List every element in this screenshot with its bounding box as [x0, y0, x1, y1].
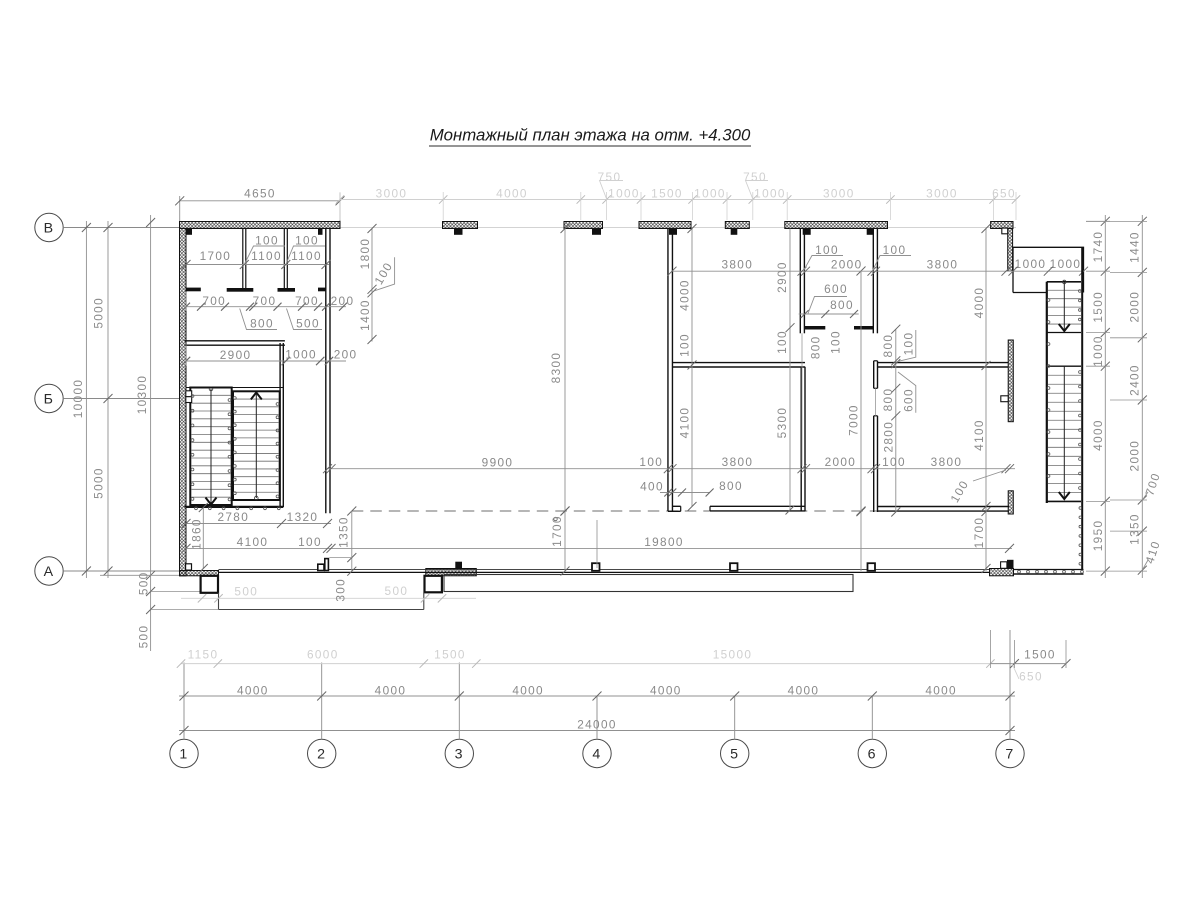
- svg-text:7: 7: [1005, 747, 1014, 763]
- svg-text:2: 2: [317, 747, 326, 763]
- svg-text:2000: 2000: [1128, 440, 1142, 472]
- svg-text:700: 700: [253, 294, 277, 308]
- svg-text:4000: 4000: [650, 684, 682, 698]
- svg-text:4000: 4000: [237, 684, 269, 698]
- svg-text:3: 3: [455, 747, 464, 763]
- svg-text:4000: 4000: [678, 279, 692, 311]
- svg-text:2780: 2780: [217, 510, 249, 524]
- svg-text:2000: 2000: [825, 455, 857, 469]
- svg-text:1000: 1000: [694, 187, 726, 201]
- svg-text:4000: 4000: [375, 684, 407, 698]
- svg-text:2000: 2000: [1128, 291, 1142, 323]
- svg-text:100: 100: [678, 333, 692, 357]
- svg-text:100: 100: [829, 330, 843, 354]
- svg-text:5000: 5000: [92, 467, 106, 499]
- svg-text:1800: 1800: [358, 238, 372, 270]
- svg-text:4: 4: [592, 747, 601, 763]
- svg-text:400: 400: [640, 480, 664, 494]
- svg-text:100: 100: [902, 332, 916, 356]
- svg-text:6000: 6000: [307, 648, 339, 662]
- svg-text:600: 600: [902, 388, 916, 412]
- svg-text:4000: 4000: [512, 684, 544, 698]
- svg-text:10000: 10000: [71, 379, 85, 419]
- svg-text:9900: 9900: [482, 456, 514, 470]
- svg-text:750: 750: [598, 170, 622, 184]
- svg-text:1700: 1700: [200, 249, 232, 263]
- svg-text:1000: 1000: [608, 187, 640, 201]
- svg-text:300: 300: [334, 578, 348, 602]
- svg-text:1150: 1150: [188, 648, 219, 662]
- svg-text:1000: 1000: [1015, 257, 1047, 271]
- svg-text:100: 100: [775, 330, 789, 354]
- svg-text:600: 600: [824, 282, 848, 296]
- svg-text:3000: 3000: [376, 187, 408, 201]
- svg-text:100: 100: [882, 455, 906, 469]
- svg-text:1: 1: [179, 747, 188, 763]
- svg-text:24000: 24000: [577, 718, 617, 732]
- svg-text:1400: 1400: [358, 299, 372, 331]
- svg-text:800: 800: [881, 334, 895, 358]
- svg-text:700: 700: [295, 294, 319, 308]
- svg-text:4000: 4000: [972, 287, 986, 319]
- svg-text:1100: 1100: [291, 249, 322, 263]
- svg-text:800: 800: [881, 388, 895, 412]
- svg-text:10300: 10300: [135, 375, 149, 415]
- svg-text:650: 650: [992, 187, 1016, 201]
- svg-text:2000: 2000: [831, 258, 863, 272]
- svg-text:1500: 1500: [434, 648, 466, 662]
- svg-text:19800: 19800: [644, 535, 684, 549]
- svg-text:1100: 1100: [251, 249, 282, 263]
- svg-text:100: 100: [298, 535, 322, 549]
- svg-text:3800: 3800: [721, 258, 753, 272]
- svg-text:4000: 4000: [1091, 419, 1105, 451]
- svg-text:1860: 1860: [190, 518, 204, 550]
- svg-text:4650: 4650: [244, 187, 276, 201]
- svg-text:4000: 4000: [925, 684, 957, 698]
- svg-text:4100: 4100: [678, 407, 692, 439]
- svg-text:500: 500: [296, 317, 320, 331]
- svg-text:1320: 1320: [287, 510, 319, 524]
- svg-text:200: 200: [331, 294, 355, 308]
- svg-text:Б: Б: [44, 392, 55, 408]
- svg-text:1350: 1350: [337, 516, 351, 548]
- svg-text:1500: 1500: [651, 187, 683, 201]
- svg-text:100: 100: [639, 455, 663, 469]
- svg-text:7000: 7000: [847, 404, 861, 436]
- svg-text:800: 800: [719, 479, 743, 493]
- svg-text:500: 500: [137, 625, 151, 649]
- svg-text:2900: 2900: [220, 348, 252, 362]
- svg-text:3800: 3800: [722, 455, 754, 469]
- svg-text:800: 800: [250, 317, 274, 331]
- svg-text:5000: 5000: [92, 297, 106, 329]
- svg-text:1000: 1000: [285, 348, 317, 362]
- svg-text:3000: 3000: [926, 187, 958, 201]
- svg-text:1000: 1000: [1050, 257, 1082, 271]
- svg-text:4000: 4000: [496, 187, 528, 201]
- svg-text:2800: 2800: [882, 421, 896, 453]
- svg-text:1700: 1700: [972, 517, 986, 549]
- svg-text:2400: 2400: [1128, 364, 1142, 396]
- svg-text:8300: 8300: [549, 352, 563, 384]
- svg-text:3800: 3800: [931, 455, 963, 469]
- svg-text:700: 700: [202, 294, 226, 308]
- svg-text:1700: 1700: [550, 515, 564, 547]
- svg-text:4000: 4000: [788, 684, 820, 698]
- svg-text:3800: 3800: [927, 258, 959, 272]
- svg-text:4100: 4100: [237, 535, 269, 549]
- svg-text:650: 650: [1019, 670, 1043, 684]
- svg-text:В: В: [44, 221, 55, 237]
- svg-text:1000: 1000: [1091, 335, 1105, 367]
- svg-text:2900: 2900: [775, 261, 789, 293]
- svg-text:1440: 1440: [1128, 231, 1142, 263]
- svg-text:5300: 5300: [775, 407, 789, 439]
- svg-text:1500: 1500: [1024, 648, 1056, 662]
- svg-text:15000: 15000: [713, 648, 753, 662]
- svg-text:200: 200: [334, 348, 358, 362]
- svg-text:1500: 1500: [1091, 291, 1105, 323]
- svg-text:1350: 1350: [1128, 513, 1142, 545]
- svg-text:500: 500: [385, 584, 409, 598]
- svg-text:4100: 4100: [972, 419, 986, 451]
- svg-text:1740: 1740: [1091, 231, 1105, 263]
- svg-text:800: 800: [830, 298, 854, 312]
- svg-text:800: 800: [809, 335, 823, 359]
- svg-text:750: 750: [743, 170, 767, 184]
- svg-text:Монтажный план этажа на отм. +: Монтажный план этажа на отм. +4.300: [430, 126, 751, 145]
- svg-text:А: А: [44, 564, 55, 580]
- svg-text:1950: 1950: [1091, 520, 1105, 552]
- svg-text:6: 6: [868, 747, 877, 763]
- svg-text:500: 500: [234, 585, 258, 599]
- svg-text:3000: 3000: [823, 187, 855, 201]
- svg-text:5: 5: [730, 747, 739, 763]
- svg-text:1000: 1000: [754, 187, 786, 201]
